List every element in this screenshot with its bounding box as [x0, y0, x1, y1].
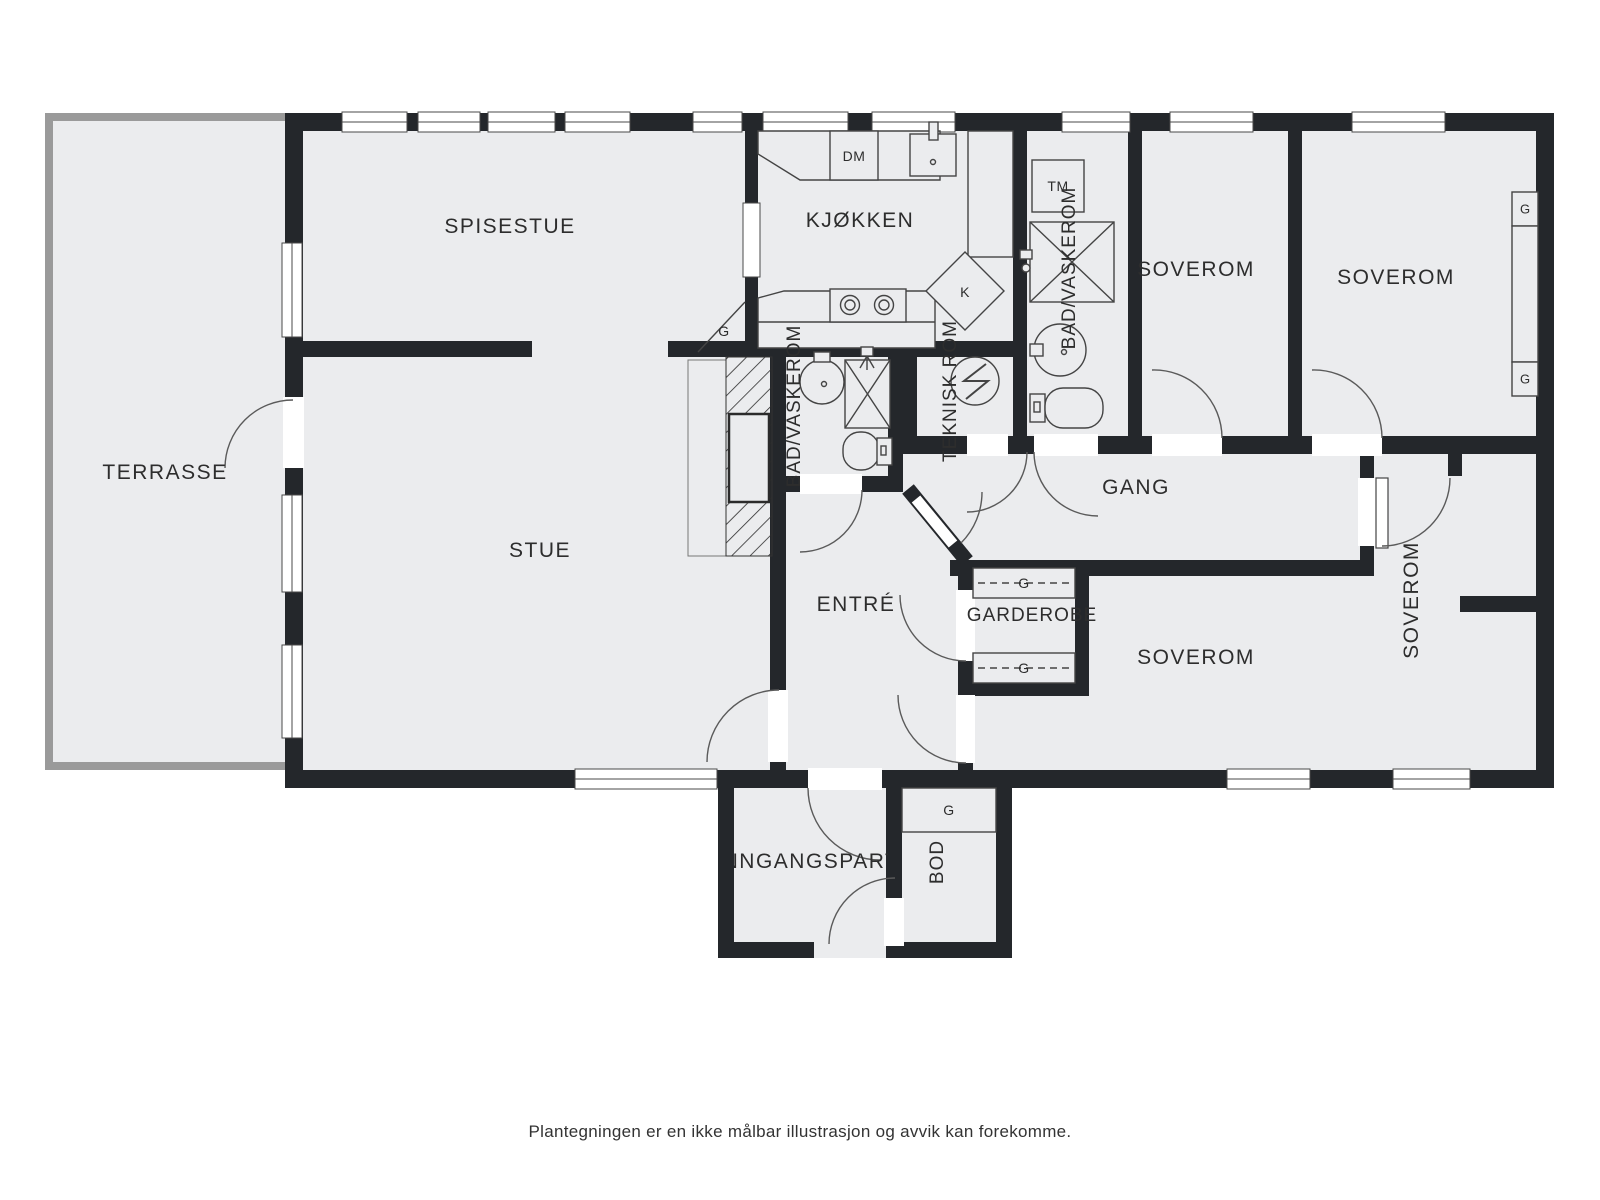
wardrobe-label: G: [718, 323, 729, 339]
room-label-garderobe: GARDEROBE: [967, 605, 1097, 627]
room-label-inngangsparti-text: INNGANGSPARTI: [734, 850, 888, 874]
disclaimer-caption: Plantegningen er en ikke målbar illustra…: [0, 1122, 1600, 1142]
room-label-soverom-1: SOVEROM: [1137, 258, 1255, 282]
room-label-bad-vaskerom-2: BAD/VASKEROM: [1059, 187, 1081, 350]
toilet-icon: [1030, 388, 1103, 428]
room-label-terrasse: TERRASSE: [102, 461, 227, 485]
room-label-soverom-2: SOVEROM: [1337, 266, 1455, 290]
wardrobe-label: G: [1520, 202, 1530, 217]
fireplace-icon: [688, 357, 772, 556]
room-label-gang: GANG: [1102, 476, 1170, 500]
wardrobe-label: G: [1018, 660, 1029, 676]
room-label-soverom-3: SOVEROM: [1137, 646, 1255, 670]
wardrobe-label: G: [1018, 575, 1029, 591]
kitchen-counter-right: [968, 131, 1013, 257]
room-label-bad-vaskerom-1: BAD/VASKEROM: [784, 325, 806, 488]
floorplan-canvas: [0, 0, 1600, 1200]
room-label-spisestue: SPISESTUE: [444, 215, 575, 239]
floorplan-page: TERRASSE SPISESTUE KJØKKEN STUE ENTRÉ GA…: [0, 0, 1600, 1200]
room-label-teknisk-rom: TEKNISK ROM: [940, 320, 962, 462]
floor-areas: [45, 113, 1554, 958]
dryer-label: TM: [1047, 178, 1068, 194]
wardrobe-label: G: [1520, 372, 1530, 387]
room-label-stue: STUE: [509, 539, 571, 563]
dishwasher-label: DM: [843, 148, 866, 164]
room-label-inngangsparti: INNGANGSPARTI: [734, 838, 888, 886]
room-label-bod: BOD: [927, 840, 949, 884]
room-label-entre: ENTRÉ: [817, 593, 896, 617]
fridge-label: K: [960, 284, 970, 300]
room-label-kjokken: KJØKKEN: [806, 209, 915, 233]
room-label-soverom-4: SOVEROM: [1400, 541, 1424, 659]
wardrobe-box: [1512, 226, 1538, 362]
wardrobe-label: G: [943, 802, 954, 818]
stove-icon: [830, 289, 906, 322]
toilet-icon: [843, 432, 892, 470]
